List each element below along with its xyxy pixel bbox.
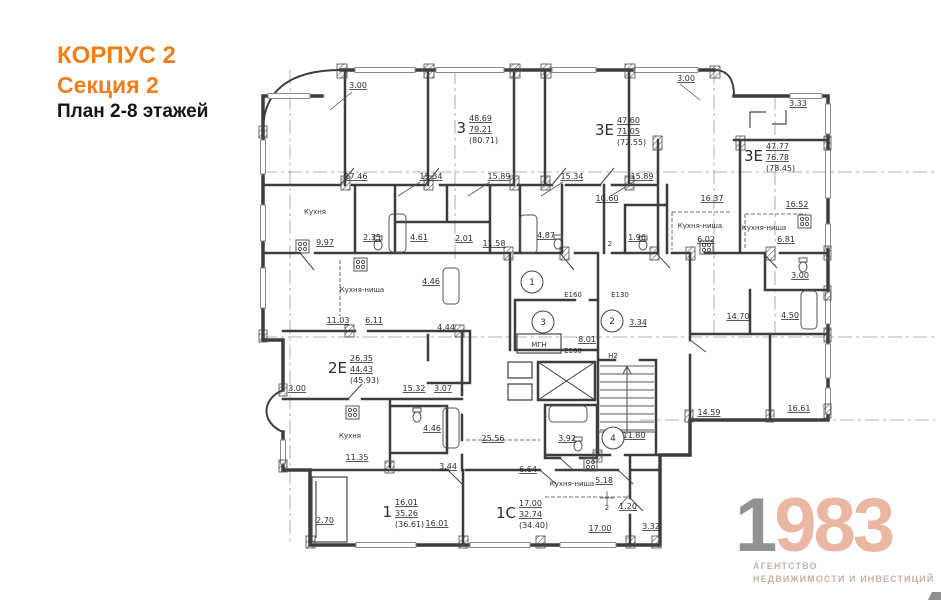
dimension-label: 5.18 <box>595 476 613 485</box>
apartment-area-total: (45.93) <box>350 376 379 385</box>
apartment-area: 47.60 <box>617 116 640 125</box>
bathtub-icon <box>443 268 459 304</box>
apartment-area: 76.78 <box>766 153 789 162</box>
dimension-label: 3.00 <box>349 81 367 90</box>
apartment-area: 44.43 <box>350 365 373 374</box>
apartment-area: 16.01 <box>395 498 418 507</box>
dimension-label: 4.46 <box>422 277 440 286</box>
building-title: КОРПУС 2 <box>57 42 208 71</box>
logo: 1983 АГЕНТСТВО НЕДВИЖИМОСТИ И ИНВЕСТИЦИЙ <box>735 495 935 586</box>
room-label: МГН <box>531 341 547 349</box>
apartment-area-total: (78.45) <box>766 164 795 173</box>
apartment-area: 71.05 <box>617 127 640 136</box>
apartment-area-total: (80.71) <box>469 136 498 145</box>
logo-year: 1983 <box>735 495 935 557</box>
dimension-label: 10.60 <box>596 194 619 203</box>
dimension-label: 15.89 <box>631 172 654 181</box>
plan-title: План 2-8 этажей <box>57 100 208 125</box>
dimension-label: 17.46 <box>345 172 368 181</box>
toilet-icon <box>413 408 421 422</box>
apartment-area: 17.00 <box>519 499 542 508</box>
staircase <box>598 366 656 434</box>
apartment-type: 1 <box>382 503 392 521</box>
dimension-label: 6.81 <box>777 235 795 244</box>
dimension-label: 6.11 <box>365 316 383 325</box>
dimension-label: 14.70 <box>727 312 750 321</box>
stove-icon <box>354 258 367 271</box>
dimension-label: 14.59 <box>698 408 721 417</box>
dimension-label: 3.07 <box>434 384 452 393</box>
axis-marker-number: 4 <box>610 434 616 444</box>
dimension-label: 3.00 <box>677 74 695 83</box>
apartment-area: 47.77 <box>766 142 789 151</box>
room-label: Кухня-ниша <box>678 222 722 230</box>
bathtub-icon <box>389 214 406 252</box>
dimension-label: 11.03 <box>327 316 350 325</box>
dimension-label: 11.80 <box>623 431 646 440</box>
dimension-label: 3.00 <box>288 384 306 393</box>
title-block: КОРПУС 2 Секция 2 План 2-8 этажей <box>57 42 208 124</box>
apartment-type: 2Е <box>328 359 347 377</box>
apartment-area-total: (36.61) <box>395 520 424 529</box>
apartment-area: 35.26 <box>395 509 418 518</box>
room-label: Кухня <box>304 208 326 216</box>
logo-tagline-line2: НЕДВИЖИМОСТИ И ИНВЕСТИЦИЙ <box>753 573 935 586</box>
dimension-label: 15.32 <box>403 384 426 393</box>
dimension-label: 25.56 <box>482 434 505 443</box>
room-label: Кухня-ниша <box>550 480 594 488</box>
toilet-icon <box>799 258 807 272</box>
dimension-label: 3.34 <box>629 318 647 327</box>
dimension-label: 2.35 <box>363 233 381 242</box>
dimension-label: 1.20 <box>619 502 637 511</box>
page: КОРПУС 2 Секция 2 План 2-8 этажей <box>0 0 941 600</box>
dimension-label: 4.87 <box>537 231 555 240</box>
bathtub-icon <box>520 215 537 253</box>
apartment-area-total: (72.55) <box>617 138 646 147</box>
apartment-type: 3Е <box>744 147 763 165</box>
apartment-area: 79.21 <box>469 125 492 134</box>
dimension-label: 1.96 <box>628 233 646 242</box>
dimension-label: 11.58 <box>483 239 506 248</box>
dimension-label: 16.61 <box>788 404 811 413</box>
thin-details <box>312 110 806 542</box>
room-label: 2 <box>605 504 609 512</box>
dimension-label: 16.52 <box>786 200 809 209</box>
room-label: Н2 <box>608 352 618 360</box>
room-label: 2 <box>608 240 612 248</box>
apartment-area: 26.35 <box>350 354 373 363</box>
room-label: Е160 <box>564 291 582 299</box>
dimension-label: 9.97 <box>316 238 334 247</box>
dimension-label: 11.35 <box>346 453 369 462</box>
apartment-type: 3 <box>456 119 466 137</box>
bathtub-icon <box>443 408 459 448</box>
axis-marker-number: 3 <box>540 318 546 328</box>
logo-year-digits-983: 983 <box>774 483 892 568</box>
dimension-label: 3.92 <box>558 434 576 443</box>
dimension-label: 2.01 <box>455 234 473 243</box>
apartment-area-total: (34.40) <box>519 521 548 530</box>
room-label: Е130 <box>611 291 629 299</box>
dimension-label: 16.37 <box>701 194 724 203</box>
balcony-arcs <box>263 70 734 432</box>
logo-year-digit-1: 1 <box>735 483 774 568</box>
dimension-label: 2.70 <box>316 516 334 525</box>
room-label: Кухня-ниша <box>340 286 384 294</box>
room-label: Кухня-ниша <box>742 224 786 232</box>
bathtub-icon <box>801 291 817 329</box>
dimension-label: 3.32 <box>642 522 660 531</box>
axis-marker-number: 2 <box>609 317 615 327</box>
labels-layer: 3.003.003.3317.4615.3415.8915.3415.8910.… <box>288 74 810 533</box>
dimension-label: 15.89 <box>488 172 511 181</box>
dimension-label: 3.00 <box>791 271 809 280</box>
dimension-label: 16.01 <box>426 519 449 528</box>
dimension-label: 8.01 <box>578 335 596 344</box>
apartment-area: 32.74 <box>519 510 542 519</box>
apartment-type: 3Е <box>595 121 614 139</box>
elevator-shaft <box>508 362 595 400</box>
dimension-label: 15.34 <box>561 172 584 181</box>
room-label: Кухня <box>339 432 361 440</box>
dimension-label: 3.44 <box>439 462 457 471</box>
dimension-label: 4.61 <box>410 233 428 242</box>
bathtub-icon <box>549 406 587 422</box>
dimension-label: 3.33 <box>789 99 807 108</box>
dimension-label: 4.44 <box>437 323 455 332</box>
section-title: Секция 2 <box>57 71 208 100</box>
door-leaves <box>300 84 777 511</box>
dimension-label: 4.50 <box>781 311 799 320</box>
apartment-type: 1С <box>496 504 516 522</box>
dimension-label: 6.64 <box>519 465 537 474</box>
apartment-area: 48.69 <box>469 114 492 123</box>
stove-icon <box>798 215 811 228</box>
room-label: Е160 <box>564 347 582 355</box>
dimension-label: 6.02 <box>697 235 715 244</box>
dimension-label: 4.46 <box>423 424 441 433</box>
axis-marker-number: 1 <box>529 278 535 288</box>
stove-icon <box>296 240 309 253</box>
dimension-label: 17.00 <box>589 524 612 533</box>
dimension-label: 15.34 <box>420 172 443 181</box>
stove-icon <box>346 406 359 419</box>
